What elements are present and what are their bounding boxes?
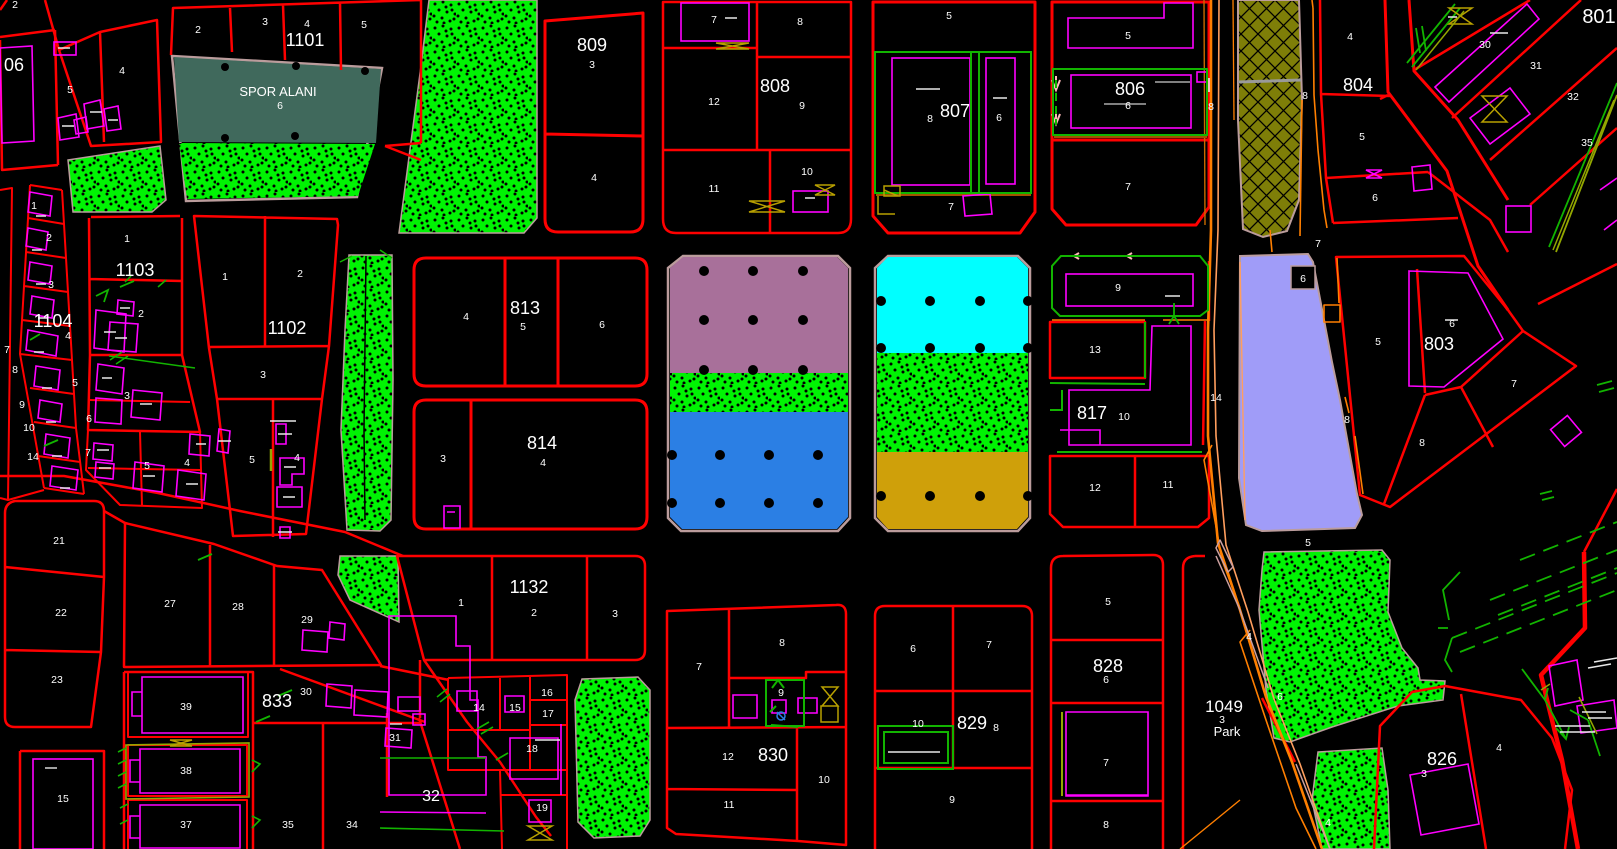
svg-text:14: 14 [27,451,39,463]
svg-text:7: 7 [1103,757,1109,769]
svg-text:6: 6 [1277,691,1283,703]
svg-text:9: 9 [778,687,784,699]
svg-text:8: 8 [779,637,785,649]
svg-text:5: 5 [1375,336,1381,348]
svg-text:6: 6 [599,319,605,331]
svg-text:38: 38 [180,765,192,777]
svg-text:12: 12 [722,751,734,763]
svg-text:829: 829 [957,713,987,733]
svg-text:30: 30 [1479,39,1491,51]
svg-text:32: 32 [422,788,440,805]
svg-text:5: 5 [1359,131,1365,143]
svg-text:30: 30 [300,686,312,698]
svg-text:2: 2 [195,24,201,36]
svg-text:15: 15 [509,702,521,714]
svg-text:23: 23 [51,674,63,686]
svg-text:3: 3 [124,390,130,402]
svg-text:34: 34 [346,819,358,831]
svg-text:11: 11 [1163,479,1174,491]
svg-text:5: 5 [361,19,367,31]
svg-text:14: 14 [1210,392,1222,404]
svg-text:21: 21 [53,535,65,547]
svg-text:13: 13 [1089,344,1101,356]
svg-text:4: 4 [540,457,546,469]
svg-text:8: 8 [797,16,803,28]
svg-text:4: 4 [463,311,469,323]
svg-text:7: 7 [711,14,717,26]
svg-text:10: 10 [818,774,830,786]
svg-text:4: 4 [294,452,300,464]
svg-text:11: 11 [709,183,720,195]
svg-text:7: 7 [4,344,10,356]
svg-text:3: 3 [260,369,266,381]
svg-text:1: 1 [458,597,464,609]
svg-text:6: 6 [996,112,1002,124]
svg-text:3: 3 [48,279,54,291]
svg-text:8: 8 [1419,437,1425,449]
svg-text:19: 19 [536,802,548,814]
svg-text:3: 3 [589,59,595,71]
svg-text:1: 1 [124,233,130,245]
svg-text:808: 808 [760,76,790,96]
svg-text:3: 3 [612,608,618,620]
svg-text:4: 4 [1347,31,1353,43]
svg-text:22: 22 [55,607,67,619]
svg-text:833: 833 [262,691,292,711]
svg-text:826: 826 [1427,749,1457,769]
svg-text:16: 16 [541,687,553,699]
svg-text:4: 4 [1325,817,1331,829]
svg-text:1: 1 [222,271,228,283]
svg-text:1: 1 [31,200,37,212]
svg-text:3: 3 [262,16,268,28]
svg-text:8: 8 [1302,90,1308,102]
svg-text:8: 8 [993,722,999,734]
svg-text:1132: 1132 [510,577,549,597]
svg-text:31: 31 [389,732,401,744]
svg-text:9: 9 [19,399,25,411]
svg-text:4: 4 [591,172,597,184]
svg-text:14: 14 [473,702,485,714]
svg-text:17: 17 [542,708,554,720]
svg-text:2: 2 [531,607,537,619]
svg-text:7: 7 [1511,378,1517,390]
svg-text:7: 7 [85,447,91,459]
svg-text:807: 807 [940,101,970,121]
svg-text:7: 7 [696,661,702,673]
svg-text:8: 8 [1208,101,1214,113]
svg-text:15: 15 [57,793,69,805]
svg-text:6: 6 [910,643,916,655]
svg-text:2: 2 [46,232,52,244]
svg-text:4: 4 [1496,742,1502,754]
svg-text:6: 6 [1372,192,1378,204]
svg-text:7: 7 [1125,181,1131,193]
svg-text:6: 6 [1103,674,1109,686]
svg-text:830: 830 [758,745,788,765]
svg-text:37: 37 [180,819,192,831]
svg-text:813: 813 [510,298,540,318]
svg-text:3: 3 [440,453,446,465]
svg-text:801: 801 [1582,6,1615,28]
svg-text:1103: 1103 [116,260,155,280]
svg-text:6: 6 [1125,100,1131,112]
svg-text:5: 5 [144,460,150,472]
svg-text:27: 27 [164,598,176,610]
svg-text:4: 4 [1246,631,1252,643]
svg-text:06: 06 [4,55,24,75]
svg-text:35: 35 [1581,137,1593,149]
svg-text:Park: Park [1214,724,1241,739]
svg-text:6: 6 [1300,273,1306,285]
svg-text:5: 5 [1305,537,1311,549]
svg-text:5: 5 [249,454,255,466]
svg-text:18: 18 [526,743,538,755]
svg-text:9: 9 [799,100,805,112]
svg-text:3: 3 [1421,768,1427,780]
svg-text:9: 9 [1115,282,1121,294]
svg-text:5: 5 [520,321,526,333]
svg-text:2: 2 [12,0,18,11]
svg-text:7: 7 [986,639,992,651]
svg-text:8: 8 [927,113,933,125]
svg-text:4: 4 [119,65,125,77]
svg-text:1102: 1102 [268,318,307,338]
svg-text:28: 28 [232,601,244,613]
svg-text:804: 804 [1343,75,1373,95]
svg-text:7: 7 [1315,238,1321,250]
svg-text:814: 814 [527,433,557,453]
svg-text:35: 35 [282,819,294,831]
svg-text:29: 29 [301,614,313,626]
svg-text:7: 7 [948,201,954,213]
svg-text:5: 5 [72,377,78,389]
svg-text:2: 2 [297,268,303,280]
svg-text:828: 828 [1093,656,1123,676]
svg-text:10: 10 [912,718,924,730]
svg-text:803: 803 [1424,334,1454,354]
svg-text:1101: 1101 [286,30,325,50]
svg-text:1104: 1104 [34,311,73,331]
svg-text:2: 2 [138,308,144,320]
svg-text:4: 4 [304,18,310,30]
svg-text:39: 39 [180,701,192,713]
svg-text:809: 809 [577,35,607,55]
svg-text:12: 12 [708,96,720,108]
svg-text:31: 31 [1530,60,1542,72]
svg-text:10: 10 [801,166,813,178]
svg-text:4: 4 [65,330,71,342]
svg-text:8: 8 [12,364,18,376]
svg-text:5: 5 [67,84,73,96]
svg-text:3: 3 [1219,714,1225,726]
svg-text:9: 9 [949,794,955,806]
svg-text:8: 8 [1344,414,1350,426]
svg-text:8: 8 [1103,819,1109,831]
svg-text:6: 6 [86,413,92,425]
svg-text:817: 817 [1077,403,1107,423]
svg-text:SPOR ALANI: SPOR ALANI [239,84,316,99]
svg-text:806: 806 [1115,79,1145,99]
svg-text:12: 12 [1089,482,1101,494]
svg-text:11: 11 [724,799,735,811]
svg-text:6: 6 [277,100,283,112]
svg-text:10: 10 [23,422,35,434]
svg-text:5: 5 [1125,30,1131,42]
svg-text:5: 5 [1105,596,1111,608]
svg-text:4: 4 [184,457,190,469]
svg-text:10: 10 [1118,411,1130,423]
svg-text:6: 6 [1449,318,1455,330]
svg-text:32: 32 [1567,91,1579,103]
svg-text:5: 5 [946,10,952,22]
